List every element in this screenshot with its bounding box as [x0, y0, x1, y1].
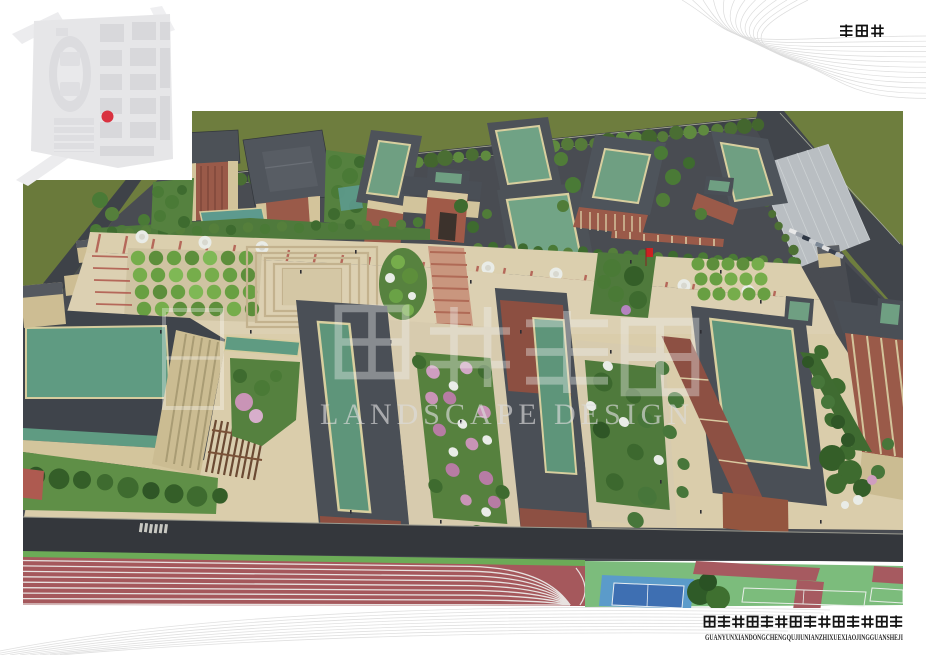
- svg-text:LANDSCAPE DESIGN: LANDSCAPE DESIGN: [320, 398, 695, 431]
- svg-text:GUANYUNXIANDONGCHENGQUJIUNIANZ: GUANYUNXIANDONGCHENGQUJIUNIANZHIXUEXIAOJ…: [705, 633, 903, 642]
